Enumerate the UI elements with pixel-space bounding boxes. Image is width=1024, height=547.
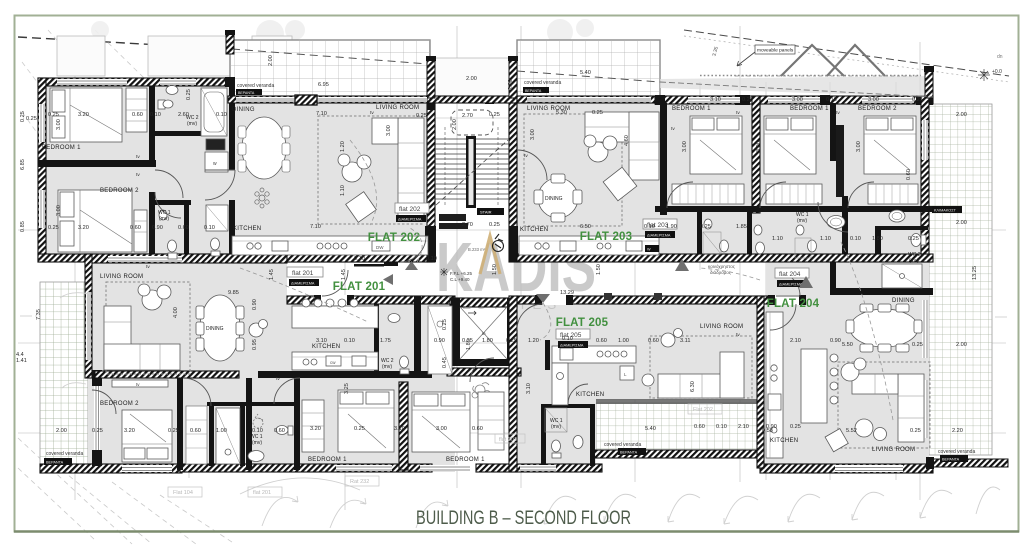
svg-text:0.10: 0.10 bbox=[562, 336, 573, 342]
svg-text:3.00: 3.00 bbox=[386, 125, 392, 136]
svg-text:0.25: 0.25 bbox=[489, 112, 500, 118]
svg-text:ΒΕΡΑΝΤΑ: ΒΕΡΑΝΤΑ bbox=[46, 461, 64, 465]
svg-text:3.00: 3.00 bbox=[436, 426, 447, 432]
svg-text:ΒΕΡΑΝΤΑ: ΒΕΡΑΝΤΑ bbox=[238, 91, 255, 95]
svg-text:3.20: 3.20 bbox=[78, 225, 89, 231]
svg-text:LIVING ROOM: LIVING ROOM bbox=[376, 105, 419, 111]
svg-text:13.29: 13.29 bbox=[560, 290, 574, 296]
svg-text:FLAT 202: FLAT 202 bbox=[368, 232, 421, 244]
svg-text:3.20: 3.20 bbox=[310, 426, 321, 432]
svg-text:0.25: 0.25 bbox=[168, 428, 179, 434]
svg-text:tv: tv bbox=[671, 126, 675, 132]
svg-text:3.00: 3.00 bbox=[56, 205, 62, 216]
svg-text:3.10: 3.10 bbox=[710, 97, 721, 103]
svg-text:LIVING ROOM: LIVING ROOM bbox=[700, 324, 743, 330]
svg-text:5.52: 5.52 bbox=[846, 428, 857, 434]
svg-text:tv: tv bbox=[370, 110, 374, 116]
svg-text:1.45: 1.45 bbox=[269, 269, 275, 280]
svg-text:0.25: 0.25 bbox=[48, 112, 59, 118]
svg-text:1.80: 1.80 bbox=[482, 338, 493, 344]
svg-text:3.00: 3.00 bbox=[530, 129, 536, 140]
svg-text:0.10: 0.10 bbox=[426, 256, 437, 262]
svg-text:1.80: 1.80 bbox=[466, 339, 472, 350]
svg-text:4.60: 4.60 bbox=[624, 135, 630, 146]
svg-text:tv: tv bbox=[436, 96, 440, 102]
svg-text:BEDROOM 2: BEDROOM 2 bbox=[100, 188, 139, 194]
svg-text:2.60: 2.60 bbox=[178, 112, 189, 118]
svg-text:+0.0: +0.0 bbox=[992, 69, 1002, 75]
svg-text:(mv): (mv) bbox=[187, 121, 197, 127]
svg-text:FLAT 204: FLAT 204 bbox=[767, 298, 820, 310]
svg-text:F.F.L +6.25: F.F.L +6.25 bbox=[450, 271, 472, 276]
svg-text:ΔΙΑΜΕΡΙΣΜΑ: ΔΙΑΜΕΡΙΣΜΑ bbox=[647, 234, 671, 238]
svg-text:3.00: 3.00 bbox=[756, 141, 762, 152]
svg-text:flat 201: flat 201 bbox=[253, 490, 271, 496]
svg-text:2.70: 2.70 bbox=[462, 222, 473, 228]
svg-text:flat 201: flat 201 bbox=[292, 270, 314, 277]
svg-text:0.25: 0.25 bbox=[489, 222, 500, 228]
svg-text:0.45: 0.45 bbox=[442, 357, 448, 368]
svg-text:0.58: 0.58 bbox=[762, 428, 773, 434]
svg-text:covered veranda: covered veranda bbox=[524, 80, 561, 86]
svg-text:0.10: 0.10 bbox=[644, 224, 655, 230]
svg-text:BEDROOM 1: BEDROOM 1 bbox=[42, 145, 81, 151]
svg-text:7.35: 7.35 bbox=[36, 309, 42, 320]
svg-text:1.20: 1.20 bbox=[528, 338, 539, 344]
svg-text:1.00: 1.00 bbox=[618, 338, 629, 344]
svg-text:tv: tv bbox=[736, 110, 740, 116]
svg-text:0.60: 0.60 bbox=[472, 426, 483, 432]
svg-text:7.10: 7.10 bbox=[310, 224, 321, 230]
svg-text:flat 201: flat 201 bbox=[499, 437, 517, 443]
svg-text:flat 204: flat 204 bbox=[779, 271, 801, 278]
svg-text:1.41: 1.41 bbox=[16, 358, 27, 364]
svg-text:1.50: 1.50 bbox=[492, 264, 498, 275]
svg-text:13.25: 13.25 bbox=[972, 266, 978, 280]
svg-text:2.20: 2.20 bbox=[952, 428, 963, 434]
svg-text:0.85: 0.85 bbox=[20, 221, 26, 232]
svg-text:BUILDING B – SECOND FLOOR: BUILDING B – SECOND FLOOR bbox=[416, 507, 631, 529]
svg-text:BEDROOM 2: BEDROOM 2 bbox=[100, 401, 139, 407]
svg-text:διάδρομος: διάδρομος bbox=[710, 269, 732, 275]
svg-text:LIVING ROOM: LIVING ROOM bbox=[100, 274, 143, 280]
svg-text:W: W bbox=[647, 248, 651, 252]
svg-text:1.50: 1.50 bbox=[596, 264, 602, 275]
svg-text:0.25: 0.25 bbox=[354, 426, 365, 432]
svg-text:3.00: 3.00 bbox=[856, 141, 862, 152]
svg-text:0.25: 0.25 bbox=[442, 319, 448, 330]
svg-text:1.45: 1.45 bbox=[341, 269, 347, 280]
svg-text:2.00: 2.00 bbox=[452, 119, 458, 130]
svg-text:flat 202: flat 202 bbox=[399, 206, 421, 213]
svg-text:(mv): (mv) bbox=[797, 218, 807, 224]
svg-text:2.00: 2.00 bbox=[956, 112, 967, 118]
svg-text:covered veranda: covered veranda bbox=[604, 442, 641, 448]
svg-text:tv: tv bbox=[136, 172, 140, 178]
svg-text:0.10: 0.10 bbox=[826, 97, 837, 103]
svg-text:3.10: 3.10 bbox=[316, 338, 327, 344]
svg-text:3.00: 3.00 bbox=[56, 119, 62, 130]
svg-text:3.10: 3.10 bbox=[394, 426, 405, 432]
svg-text:5.30: 5.30 bbox=[556, 110, 567, 116]
svg-text:0.90: 0.90 bbox=[830, 338, 841, 344]
svg-text:0.60: 0.60 bbox=[694, 424, 705, 430]
svg-text:0.60: 0.60 bbox=[648, 338, 659, 344]
svg-text:(mv): (mv) bbox=[159, 216, 169, 222]
svg-text:0.25: 0.25 bbox=[592, 110, 603, 116]
svg-text:0.95: 0.95 bbox=[252, 339, 258, 350]
svg-text:KITCHEN: KITCHEN bbox=[233, 226, 261, 232]
svg-text:κοινόχρηστος: κοινόχρηστος bbox=[708, 263, 736, 269]
svg-text:B.233 m²: B.233 m² bbox=[468, 247, 486, 252]
svg-text:LIVING ROOM: LIVING ROOM bbox=[872, 447, 915, 453]
svg-text:2.10: 2.10 bbox=[790, 338, 801, 344]
svg-text:ΔΙΑΜΕΡΙΣΜΑ: ΔΙΑΜΕΡΙΣΜΑ bbox=[560, 344, 584, 348]
svg-text:KITCHEN: KITCHEN bbox=[520, 227, 548, 233]
svg-text:0.10: 0.10 bbox=[716, 424, 727, 430]
svg-text:DINING: DINING bbox=[545, 196, 563, 202]
svg-text:2.70: 2.70 bbox=[462, 113, 473, 119]
svg-text:ΔΙΑΜΕΡΙΣΜΑ: ΔΙΑΜΕΡΙΣΜΑ bbox=[779, 283, 803, 287]
svg-text:5.40: 5.40 bbox=[580, 70, 591, 76]
svg-text:(mv): (mv) bbox=[551, 424, 561, 430]
svg-text:1.00: 1.00 bbox=[216, 428, 227, 434]
svg-text:1.85: 1.85 bbox=[736, 224, 747, 230]
svg-text:2.00: 2.00 bbox=[56, 428, 67, 434]
svg-text:dn: dn bbox=[997, 54, 1003, 60]
svg-text:0.25: 0.25 bbox=[416, 113, 427, 119]
svg-text:1.90: 1.90 bbox=[666, 224, 677, 230]
svg-text:tv: tv bbox=[276, 376, 280, 382]
svg-text:4.00: 4.00 bbox=[173, 307, 179, 318]
svg-text:BEDROOM 1: BEDROOM 1 bbox=[672, 106, 711, 112]
svg-text:0.25: 0.25 bbox=[912, 97, 923, 103]
svg-text:Rat 232: Rat 232 bbox=[350, 479, 369, 485]
svg-text:3.20: 3.20 bbox=[124, 428, 135, 434]
svg-text:9.85: 9.85 bbox=[228, 290, 239, 296]
svg-text:3.00: 3.00 bbox=[682, 141, 688, 152]
svg-text:DW: DW bbox=[376, 245, 384, 250]
svg-text:7.10: 7.10 bbox=[316, 111, 327, 117]
svg-text:FLAT 203: FLAT 203 bbox=[580, 231, 633, 243]
svg-text:3.11: 3.11 bbox=[680, 338, 690, 344]
svg-text:0.25: 0.25 bbox=[48, 225, 59, 231]
svg-text:(mv): (mv) bbox=[252, 440, 262, 446]
svg-text:0.25: 0.25 bbox=[790, 424, 801, 430]
svg-text:3.10: 3.10 bbox=[526, 383, 532, 394]
svg-text:2.00: 2.00 bbox=[466, 76, 477, 82]
svg-text:0.60: 0.60 bbox=[596, 338, 607, 344]
svg-text:ΔΙΑΜΕΡΙΣΜΑ: ΔΙΑΜΕΡΙΣΜΑ bbox=[398, 218, 422, 222]
svg-text:tv: tv bbox=[146, 264, 150, 270]
svg-text:w: w bbox=[213, 161, 217, 167]
svg-text:in: in bbox=[482, 331, 486, 336]
svg-text:1.10: 1.10 bbox=[772, 236, 783, 242]
svg-text:6.95: 6.95 bbox=[318, 82, 329, 88]
svg-text:ΚΛΙΜΑΚΟΣΤ: ΚΛΙΜΑΚΟΣΤ bbox=[934, 209, 957, 213]
svg-text:C.L +9.40: C.L +9.40 bbox=[450, 277, 470, 282]
svg-text:BEDROOM 1: BEDROOM 1 bbox=[446, 457, 485, 463]
svg-text:0.60: 0.60 bbox=[178, 225, 189, 231]
svg-text:tv: tv bbox=[836, 110, 840, 116]
svg-text:(mv): (mv) bbox=[909, 258, 919, 264]
svg-text:0.10: 0.10 bbox=[150, 112, 161, 118]
svg-text:0.25: 0.25 bbox=[20, 111, 26, 122]
svg-text:BEDROOM 1: BEDROOM 1 bbox=[308, 457, 347, 463]
svg-text:covered veranda: covered veranda bbox=[46, 451, 83, 457]
svg-text:3.00: 3.00 bbox=[868, 97, 879, 103]
svg-text:0.10: 0.10 bbox=[850, 236, 861, 242]
svg-text:DINING: DINING bbox=[892, 298, 915, 304]
svg-text:cw: cw bbox=[330, 360, 336, 365]
svg-text:KITCHEN: KITCHEN bbox=[576, 392, 604, 398]
svg-text:0.25: 0.25 bbox=[742, 97, 753, 103]
svg-text:0.90: 0.90 bbox=[152, 225, 163, 231]
svg-text:(mv): (mv) bbox=[382, 364, 392, 370]
svg-text:2.10: 2.10 bbox=[738, 424, 749, 430]
svg-text:6.85: 6.85 bbox=[20, 159, 26, 170]
svg-text:0.10: 0.10 bbox=[204, 225, 215, 231]
svg-text:5.40: 5.40 bbox=[645, 426, 656, 432]
svg-text:1.20: 1.20 bbox=[340, 141, 346, 152]
svg-text:0.60: 0.60 bbox=[190, 428, 201, 434]
svg-text:1.75: 1.75 bbox=[380, 338, 391, 344]
svg-text:tv: tv bbox=[524, 153, 528, 159]
svg-text:2.00: 2.00 bbox=[268, 55, 274, 66]
svg-text:1.80: 1.80 bbox=[872, 236, 883, 242]
svg-text:tv: tv bbox=[736, 332, 740, 338]
svg-text:FLAT 205: FLAT 205 bbox=[556, 317, 609, 329]
svg-text:2.00: 2.00 bbox=[956, 342, 967, 348]
svg-text:DINING: DINING bbox=[206, 326, 224, 332]
svg-text:BEDROOM 2: BEDROOM 2 bbox=[858, 106, 897, 112]
svg-text:2.00: 2.00 bbox=[956, 220, 967, 226]
svg-text:STAIR: STAIR bbox=[480, 210, 492, 215]
svg-text:3.25: 3.25 bbox=[344, 383, 350, 394]
svg-text:BEDROOM 1: BEDROOM 1 bbox=[790, 106, 829, 112]
svg-text:6.30: 6.30 bbox=[690, 381, 696, 392]
svg-text:1.10: 1.10 bbox=[340, 185, 346, 196]
svg-text:0.25: 0.25 bbox=[506, 338, 517, 344]
svg-text:ΒΕΡΑΝΤΑ: ΒΕΡΑΝΤΑ bbox=[525, 89, 542, 93]
svg-text:covered veranda: covered veranda bbox=[938, 449, 975, 455]
svg-text:ΒΕΡΑΝΤΑ: ΒΕΡΑΝΤΑ bbox=[620, 451, 638, 455]
svg-text:0.25: 0.25 bbox=[186, 89, 192, 100]
svg-text:1.10: 1.10 bbox=[820, 236, 831, 242]
svg-text:0.60: 0.60 bbox=[906, 169, 912, 180]
svg-text:0.10: 0.10 bbox=[354, 256, 365, 262]
svg-text:0.90: 0.90 bbox=[252, 299, 258, 310]
svg-text:3.00: 3.00 bbox=[792, 97, 803, 103]
svg-text:FLAT 201: FLAT 201 bbox=[333, 281, 386, 293]
svg-text:0.25: 0.25 bbox=[700, 224, 711, 230]
svg-text:KITCHEN: KITCHEN bbox=[770, 438, 798, 444]
svg-text:Flat 104: Flat 104 bbox=[173, 490, 193, 496]
svg-text:0.10: 0.10 bbox=[344, 338, 355, 344]
svg-text:KITCHEN: KITCHEN bbox=[312, 344, 340, 350]
svg-text:0.25: 0.25 bbox=[912, 342, 923, 348]
svg-text:0.10: 0.10 bbox=[252, 428, 263, 434]
svg-text:0.60: 0.60 bbox=[274, 428, 285, 434]
svg-text:DINING: DINING bbox=[232, 107, 255, 113]
svg-text:2.00: 2.00 bbox=[508, 79, 514, 90]
svg-text:ΔΙΑΜΕΡΙΣΜΑ: ΔΙΑΜΕΡΙΣΜΑ bbox=[291, 282, 315, 286]
svg-text:0.25: 0.25 bbox=[908, 236, 919, 242]
svg-text:0.10: 0.10 bbox=[216, 112, 227, 118]
svg-text:0.25: 0.25 bbox=[92, 428, 103, 434]
svg-text:Flat 202: Flat 202 bbox=[693, 407, 713, 413]
svg-text:0.60: 0.60 bbox=[130, 225, 141, 231]
svg-text:0.60: 0.60 bbox=[132, 112, 143, 118]
svg-text:3.20: 3.20 bbox=[78, 112, 89, 118]
svg-text:0.25: 0.25 bbox=[910, 428, 921, 434]
svg-text:tv: tv bbox=[136, 154, 140, 160]
svg-text:covered veranda: covered veranda bbox=[237, 83, 274, 89]
svg-text:0.25: 0.25 bbox=[26, 116, 37, 122]
svg-text:0.90: 0.90 bbox=[434, 338, 445, 344]
svg-text:moveable panels: moveable panels bbox=[757, 48, 794, 54]
svg-text:6.50: 6.50 bbox=[580, 224, 591, 230]
svg-text:ΒΕΡΑΝΤΑ: ΒΕΡΑΝΤΑ bbox=[942, 458, 960, 462]
svg-text:5.50: 5.50 bbox=[842, 342, 853, 348]
